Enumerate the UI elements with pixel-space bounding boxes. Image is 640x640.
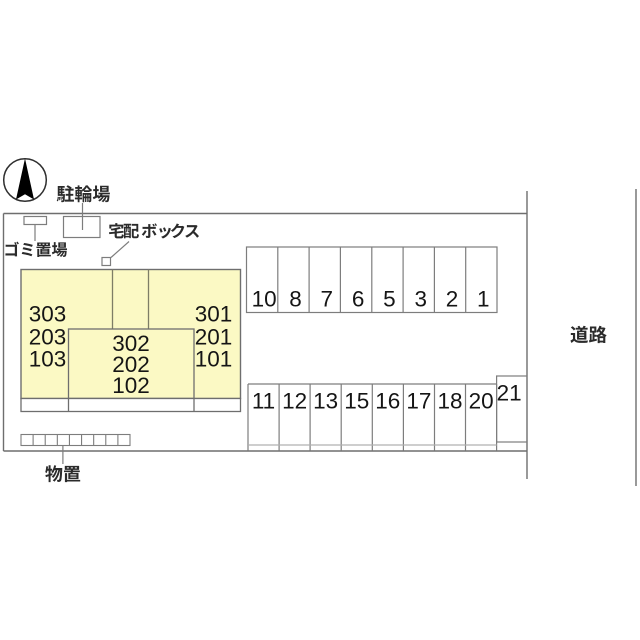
svg-text:15: 15 [344,389,369,414]
svg-text:12: 12 [282,389,307,414]
svg-text:7: 7 [321,287,334,312]
svg-text:301: 301 [195,301,233,326]
svg-text:2: 2 [446,287,459,312]
svg-text:21: 21 [497,381,522,406]
svg-text:6: 6 [352,287,365,312]
svg-text:102: 102 [112,373,150,398]
svg-text:1: 1 [477,287,490,312]
svg-text:16: 16 [375,389,400,414]
svg-text:101: 101 [195,347,233,372]
svg-text:103: 103 [29,347,67,372]
svg-text:18: 18 [437,389,462,414]
svg-text:10: 10 [252,287,277,312]
svg-text:17: 17 [406,389,431,414]
svg-text:5: 5 [383,287,396,312]
svg-text:13: 13 [313,389,338,414]
svg-text:11: 11 [252,389,275,414]
svg-text:20: 20 [469,389,494,414]
svg-text:3: 3 [414,287,427,312]
svg-text:8: 8 [289,287,302,312]
svg-text:303: 303 [29,301,67,326]
